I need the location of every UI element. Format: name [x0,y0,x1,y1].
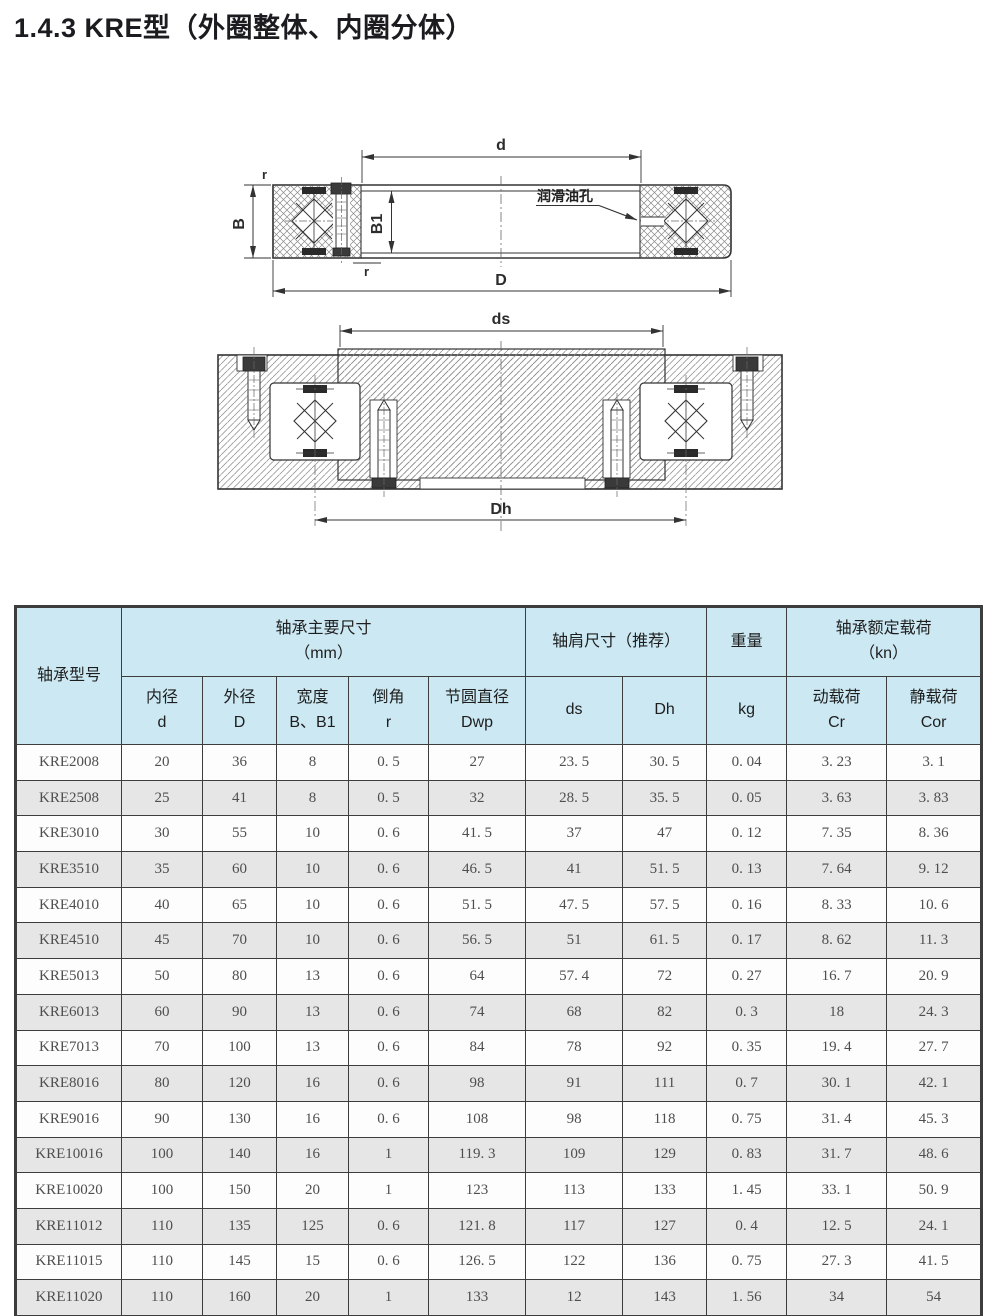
value-cell: 18 [787,994,887,1030]
value-cell: 1 [349,1280,429,1316]
table-row: KRE110121101351250. 6121. 81171270. 412.… [16,1208,982,1244]
header-weight: 重量 [707,607,787,677]
value-cell: 27. 3 [787,1244,887,1280]
value-cell: 3. 83 [887,780,982,816]
dim-label-d: d [496,137,506,154]
value-cell: 27 [429,745,526,781]
table-header: 轴承型号 轴承主要尺寸 （mm） 轴肩尺寸（推荐） 重量 轴承额定载荷 （kn）… [16,607,982,745]
value-cell: 16 [277,1066,349,1102]
value-cell: 16. 7 [787,959,887,995]
value-cell: 24. 3 [887,994,982,1030]
value-cell: 7. 64 [787,852,887,888]
value-cell: 0. 5 [349,780,429,816]
value-cell: 98 [429,1066,526,1102]
value-cell: 10 [277,887,349,923]
value-cell: 100 [122,1137,203,1173]
value-cell: 30 [122,816,203,852]
value-cell: 57. 5 [623,887,707,923]
table-row: KRE35103560100. 646. 54151. 50. 137. 649… [16,852,982,888]
value-cell: 28. 5 [526,780,623,816]
value-cell: 0. 6 [349,1244,429,1280]
dim-ds: ds [340,311,663,347]
value-cell: 51. 5 [429,887,526,923]
model-cell: KRE3010 [16,816,122,852]
value-cell: 24. 1 [887,1208,982,1244]
oil-hole-label: 润滑油孔 [537,188,593,204]
model-cell: KRE4010 [16,887,122,923]
value-cell: 47. 5 [526,887,623,923]
value-cell: 0. 27 [707,959,787,995]
header-static-load: 静载荷Cor [887,677,982,745]
value-cell: 61. 5 [623,923,707,959]
value-cell: 8 [277,780,349,816]
catalog-page: 1.4.3 KRE型（外圈整体、内圈分体） [0,0,1000,1316]
value-cell: 0. 6 [349,923,429,959]
model-cell: KRE10016 [16,1137,122,1173]
value-cell: 126. 5 [429,1244,526,1280]
value-cell: 1. 56 [707,1280,787,1316]
value-cell: 10 [277,852,349,888]
model-cell: KRE7013 [16,1030,122,1066]
value-cell: 55 [203,816,277,852]
value-cell: 108 [429,1101,526,1137]
value-cell: 45. 3 [887,1101,982,1137]
value-cell: 0. 4 [707,1208,787,1244]
value-cell: 60 [122,994,203,1030]
value-cell: 30. 5 [623,745,707,781]
value-cell: 0. 75 [707,1244,787,1280]
value-cell: 15 [277,1244,349,1280]
value-cell: 13 [277,959,349,995]
value-cell: 0. 17 [707,923,787,959]
model-cell: KRE8016 [16,1066,122,1102]
value-cell: 20 [122,745,203,781]
value-cell: 80 [122,1066,203,1102]
value-cell: 10. 6 [887,887,982,923]
value-cell: 0. 12 [707,816,787,852]
value-cell: 3. 23 [787,745,887,781]
dim-label-B: B [231,218,248,230]
table-row: KRE901690130160. 6108981180. 7531. 445. … [16,1101,982,1137]
value-cell: 20 [277,1280,349,1316]
value-cell: 20 [277,1173,349,1209]
technical-drawing: 润滑油孔 d D B [0,0,1000,600]
r-label-top: r [262,167,267,182]
value-cell: 7. 35 [787,816,887,852]
header-width: 宽度B、B1 [277,677,349,745]
value-cell: 41. 5 [429,816,526,852]
value-cell: 1. 45 [707,1173,787,1209]
model-cell: KRE11015 [16,1244,122,1280]
value-cell: 121. 8 [429,1208,526,1244]
value-cell: 16 [277,1101,349,1137]
oil-hole [641,217,664,226]
value-cell: 0. 6 [349,994,429,1030]
table-row: KRE40104065100. 651. 547. 557. 50. 168. … [16,887,982,923]
value-cell: 127 [623,1208,707,1244]
value-cell: 46. 5 [429,852,526,888]
header-dynamic-load: 动载荷Cr [787,677,887,745]
header-Dh: Dh [623,677,707,745]
value-cell: 74 [429,994,526,1030]
value-cell: 0. 6 [349,887,429,923]
mounting-section-drawing: ds Dh [218,311,782,532]
model-cell: KRE2508 [16,780,122,816]
value-cell: 150 [203,1173,277,1209]
model-cell: KRE11012 [16,1208,122,1244]
value-cell: 109 [526,1137,623,1173]
value-cell: 51. 5 [623,852,707,888]
value-cell: 9. 12 [887,852,982,888]
value-cell: 35. 5 [623,780,707,816]
value-cell: 0. 6 [349,959,429,995]
value-cell: 10 [277,816,349,852]
value-cell: 10 [277,923,349,959]
table-row: KRE45104570100. 656. 55161. 50. 178. 621… [16,923,982,959]
value-cell: 8. 33 [787,887,887,923]
value-cell: 82 [623,994,707,1030]
model-cell: KRE3510 [16,852,122,888]
value-cell: 160 [203,1280,277,1316]
value-cell: 90 [122,1101,203,1137]
header-model: 轴承型号 [16,607,122,745]
value-cell: 117 [526,1208,623,1244]
value-cell: 48. 6 [887,1137,982,1173]
value-cell: 130 [203,1101,277,1137]
value-cell: 111 [623,1066,707,1102]
value-cell: 12. 5 [787,1208,887,1244]
value-cell: 90 [203,994,277,1030]
header-kg: kg [707,677,787,745]
value-cell: 145 [203,1244,277,1280]
value-cell: 41 [526,852,623,888]
value-cell: 100 [203,1030,277,1066]
value-cell: 0. 6 [349,816,429,852]
spec-table: 轴承型号 轴承主要尺寸 （mm） 轴肩尺寸（推荐） 重量 轴承额定载荷 （kn）… [14,605,983,1316]
value-cell: 35 [122,852,203,888]
table-row: KRE60136090130. 67468820. 31824. 3 [16,994,982,1030]
value-cell: 50 [122,959,203,995]
header-outer-dia: 外径D [203,677,277,745]
value-cell: 41. 5 [887,1244,982,1280]
value-cell: 65 [203,887,277,923]
value-cell: 133 [623,1173,707,1209]
table-row: KRE11015110145150. 6126. 51221360. 7527.… [16,1244,982,1280]
mounting-roller-left [270,375,360,526]
value-cell: 68 [526,994,623,1030]
r-label-bottom: r [364,264,369,279]
value-cell: 3. 1 [887,745,982,781]
value-cell: 140 [203,1137,277,1173]
bearing-section-drawing: 润滑油孔 d D B [231,137,731,297]
dim-Dh: Dh [315,501,686,520]
value-cell: 92 [623,1030,707,1066]
header-bore: 内径d [122,677,203,745]
value-cell: 3. 63 [787,780,887,816]
value-cell: 1 [349,1137,429,1173]
value-cell: 100 [122,1173,203,1209]
value-cell: 0. 04 [707,745,787,781]
value-cell: 125 [277,1208,349,1244]
value-cell: 70 [203,923,277,959]
dim-D: D [273,260,731,297]
value-cell: 0. 05 [707,780,787,816]
header-ds: ds [526,677,623,745]
header-load: 轴承额定载荷 （kn） [787,607,982,677]
value-cell: 0. 5 [349,745,429,781]
table-row: KRE801680120160. 698911110. 730. 142. 1 [16,1066,982,1102]
value-cell: 0. 75 [707,1101,787,1137]
table-row: KRE2008203680. 52723. 530. 50. 043. 233.… [16,745,982,781]
value-cell: 72 [623,959,707,995]
dim-label-ds: ds [492,311,511,328]
value-cell: 36 [203,745,277,781]
value-cell: 23. 5 [526,745,623,781]
value-cell: 37 [526,816,623,852]
value-cell: 0. 35 [707,1030,787,1066]
dim-label-Dh: Dh [490,501,511,518]
bottom-recess [420,478,585,489]
value-cell: 33. 1 [787,1173,887,1209]
value-cell: 143 [623,1280,707,1316]
value-cell: 110 [122,1208,203,1244]
value-cell: 98 [526,1101,623,1137]
value-cell: 51 [526,923,623,959]
value-cell: 16 [277,1137,349,1173]
value-cell: 27. 7 [887,1030,982,1066]
value-cell: 1 [349,1173,429,1209]
value-cell: 119. 3 [429,1137,526,1173]
value-cell: 0. 6 [349,1101,429,1137]
value-cell: 0. 3 [707,994,787,1030]
table-row: KRE100201001502011231131331. 4533. 150. … [16,1173,982,1209]
value-cell: 32 [429,780,526,816]
value-cell: 13 [277,1030,349,1066]
value-cell: 25 [122,780,203,816]
table-row: KRE2508254180. 53228. 535. 50. 053. 633.… [16,780,982,816]
value-cell: 0. 16 [707,887,787,923]
table-row: KRE50135080130. 66457. 4720. 2716. 720. … [16,959,982,995]
value-cell: 0. 6 [349,852,429,888]
r-label-bottom-group: r [353,263,381,279]
dim-B: B [231,185,271,258]
value-cell: 118 [623,1101,707,1137]
value-cell: 42. 1 [887,1066,982,1102]
dim-d: d [362,137,641,183]
table-row: KRE701370100130. 68478920. 3519. 427. 7 [16,1030,982,1066]
table-row: KRE30103055100. 641. 537470. 127. 358. 3… [16,816,982,852]
model-cell: KRE6013 [16,994,122,1030]
value-cell: 0. 7 [707,1066,787,1102]
value-cell: 133 [429,1280,526,1316]
table-row: KRE11020110160201133121431. 563454 [16,1280,982,1316]
table-row: KRE10016100140161119. 31091290. 8331. 74… [16,1137,982,1173]
value-cell: 135 [203,1208,277,1244]
header-pitch-dia: 节圆直径Dwp [429,677,526,745]
value-cell: 122 [526,1244,623,1280]
value-cell: 0. 6 [349,1030,429,1066]
value-cell: 120 [203,1066,277,1102]
value-cell: 129 [623,1137,707,1173]
value-cell: 0. 6 [349,1208,429,1244]
value-cell: 31. 7 [787,1137,887,1173]
value-cell: 45 [122,923,203,959]
value-cell: 0. 6 [349,1066,429,1102]
value-cell: 64 [429,959,526,995]
value-cell: 80 [203,959,277,995]
model-cell: KRE10020 [16,1173,122,1209]
dim-label-B1: B1 [369,214,386,235]
header-shoulder: 轴肩尺寸（推荐） [526,607,707,677]
spec-table-container: 轴承型号 轴承主要尺寸 （mm） 轴肩尺寸（推荐） 重量 轴承额定载荷 （kn）… [14,605,980,1316]
value-cell: 34 [787,1280,887,1316]
value-cell: 20. 9 [887,959,982,995]
value-cell: 54 [887,1280,982,1316]
value-cell: 8. 36 [887,816,982,852]
value-cell: 50. 9 [887,1173,982,1209]
value-cell: 60 [203,852,277,888]
value-cell: 57. 4 [526,959,623,995]
table-body: KRE2008203680. 52723. 530. 50. 043. 233.… [16,745,982,1316]
value-cell: 19. 4 [787,1030,887,1066]
model-cell: KRE4510 [16,923,122,959]
value-cell: 136 [623,1244,707,1280]
value-cell: 41 [203,780,277,816]
value-cell: 70 [122,1030,203,1066]
value-cell: 110 [122,1280,203,1316]
value-cell: 0. 13 [707,852,787,888]
value-cell: 0. 83 [707,1137,787,1173]
value-cell: 8. 62 [787,923,887,959]
mounting-roller-right [640,375,732,526]
header-chamfer: 倒角r [349,677,429,745]
value-cell: 56. 5 [429,923,526,959]
model-cell: KRE5013 [16,959,122,995]
value-cell: 40 [122,887,203,923]
value-cell: 91 [526,1066,623,1102]
value-cell: 31. 4 [787,1101,887,1137]
value-cell: 110 [122,1244,203,1280]
model-cell: KRE9016 [16,1101,122,1137]
value-cell: 123 [429,1173,526,1209]
value-cell: 30. 1 [787,1066,887,1102]
model-cell: KRE11020 [16,1280,122,1316]
clamp-bolt [331,177,351,263]
value-cell: 84 [429,1030,526,1066]
dim-label-D: D [495,272,507,289]
value-cell: 13 [277,994,349,1030]
value-cell: 113 [526,1173,623,1209]
header-main-dims: 轴承主要尺寸 （mm） [122,607,526,677]
value-cell: 8 [277,745,349,781]
value-cell: 11. 3 [887,923,982,959]
value-cell: 12 [526,1280,623,1316]
model-cell: KRE2008 [16,745,122,781]
value-cell: 78 [526,1030,623,1066]
value-cell: 47 [623,816,707,852]
